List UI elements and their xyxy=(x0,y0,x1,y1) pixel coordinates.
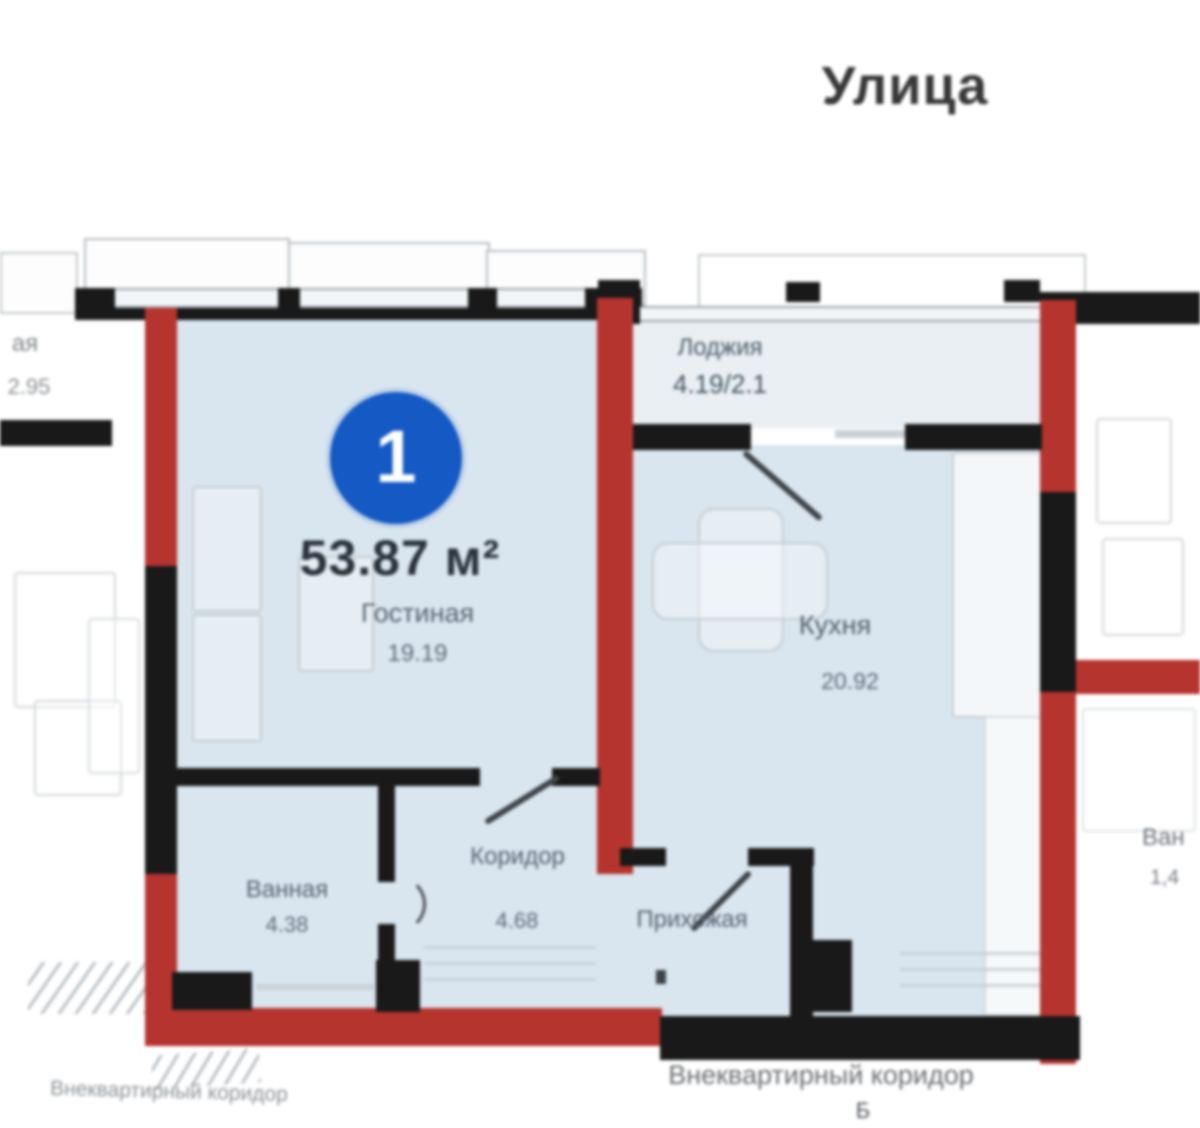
corridor-label: Коридор xyxy=(440,843,595,871)
total-area-label: 53.87 м² xyxy=(250,530,550,588)
floor-mark xyxy=(656,970,666,984)
living-room-label: Гостиная xyxy=(330,598,505,629)
wall-living-corridor-stub xyxy=(552,768,600,786)
vent-shaft xyxy=(806,940,852,1012)
common-corridor-label-left: Внеквартирный коридор xyxy=(4,1076,335,1109)
stairwell-mark: Б xyxy=(848,1098,878,1123)
stairs-hatch xyxy=(28,962,146,1014)
hall-doorway-floor xyxy=(593,870,637,1016)
wall-bathroom-upper xyxy=(378,786,395,882)
wall-left-upper xyxy=(145,298,177,566)
bathroom-area: 4.38 xyxy=(212,912,362,937)
window-sill xyxy=(0,252,78,314)
kitchen-counter xyxy=(984,716,1044,1016)
loggia-area: 4.19/2.1 xyxy=(642,370,798,400)
wall-right-middle xyxy=(1040,492,1076,692)
wall-living-kitchen-divider xyxy=(597,298,633,874)
floorplan: Улица xyxy=(0,0,1200,1128)
neighbor-label-fragment: ая xyxy=(0,330,68,358)
bottom-window-line xyxy=(256,984,374,990)
wall-loggia-kitchen-right xyxy=(905,424,1042,450)
wall-hall-stub-left xyxy=(620,848,666,866)
counter-line xyxy=(900,968,1040,971)
wardrobe-line xyxy=(424,962,596,965)
floorplan-screenshot: Улица xyxy=(0,0,1200,1128)
wardrobe-line xyxy=(424,946,596,949)
hallway-label: Прихожая xyxy=(612,906,772,934)
wardrobe-line xyxy=(424,978,596,981)
bathroom-door-arc xyxy=(370,876,426,932)
neighbor-label-fragment: Ван xyxy=(1142,824,1200,852)
loggia-label: Лоджия xyxy=(650,334,790,362)
window-opening xyxy=(115,288,278,308)
wall-right-upper xyxy=(1040,300,1076,492)
wall-left-middle xyxy=(145,566,177,874)
neighbor-fixture-outline xyxy=(88,618,140,774)
common-corridor-label: Внеквартирный коридор xyxy=(586,1060,1056,1091)
kitchen-area: 20.92 xyxy=(770,668,930,694)
wall-loggia-stub xyxy=(786,282,820,302)
corridor-area: 4.68 xyxy=(452,908,582,933)
dining-table-outline xyxy=(652,542,828,620)
neighbor-area-fragment: 1,4 xyxy=(1150,866,1200,890)
apartment-badge[interactable]: 1 xyxy=(330,392,462,524)
wall-bottom-left xyxy=(145,1008,662,1046)
window-opening xyxy=(497,288,585,308)
kitchen-cabinet-outline xyxy=(952,452,1044,718)
counter-line xyxy=(900,952,1040,955)
sofa-outline xyxy=(192,614,262,742)
neighbor-fixture-outline xyxy=(1096,418,1172,524)
wall-bottom-right xyxy=(660,1016,1080,1060)
loggia-kitchen-window-line xyxy=(835,430,907,438)
wall-neighbor-left xyxy=(0,420,112,446)
street-label: Улица xyxy=(790,55,1020,117)
bathroom-label: Ванная xyxy=(212,876,362,904)
vent-block-a xyxy=(172,972,252,1010)
neighbor-area-fragment: 2.95 xyxy=(0,374,72,399)
kitchen-label: Кухня xyxy=(755,610,915,641)
neighbor-fixture-outline xyxy=(1082,708,1196,832)
wall-loggia-kitchen-left xyxy=(633,424,751,450)
wall-neighbor-divider xyxy=(1076,660,1200,694)
neighbor-fixture-outline xyxy=(1102,538,1184,636)
wall-right-lower xyxy=(1040,692,1076,1064)
wall-living-corridor xyxy=(145,768,480,786)
wall-loggia-stub xyxy=(1004,280,1040,302)
vent-block-b xyxy=(376,960,420,1012)
counter-line xyxy=(900,984,1040,987)
living-room-area: 19.19 xyxy=(330,640,505,668)
window-opening xyxy=(300,288,468,308)
loggia-window xyxy=(640,306,1040,322)
